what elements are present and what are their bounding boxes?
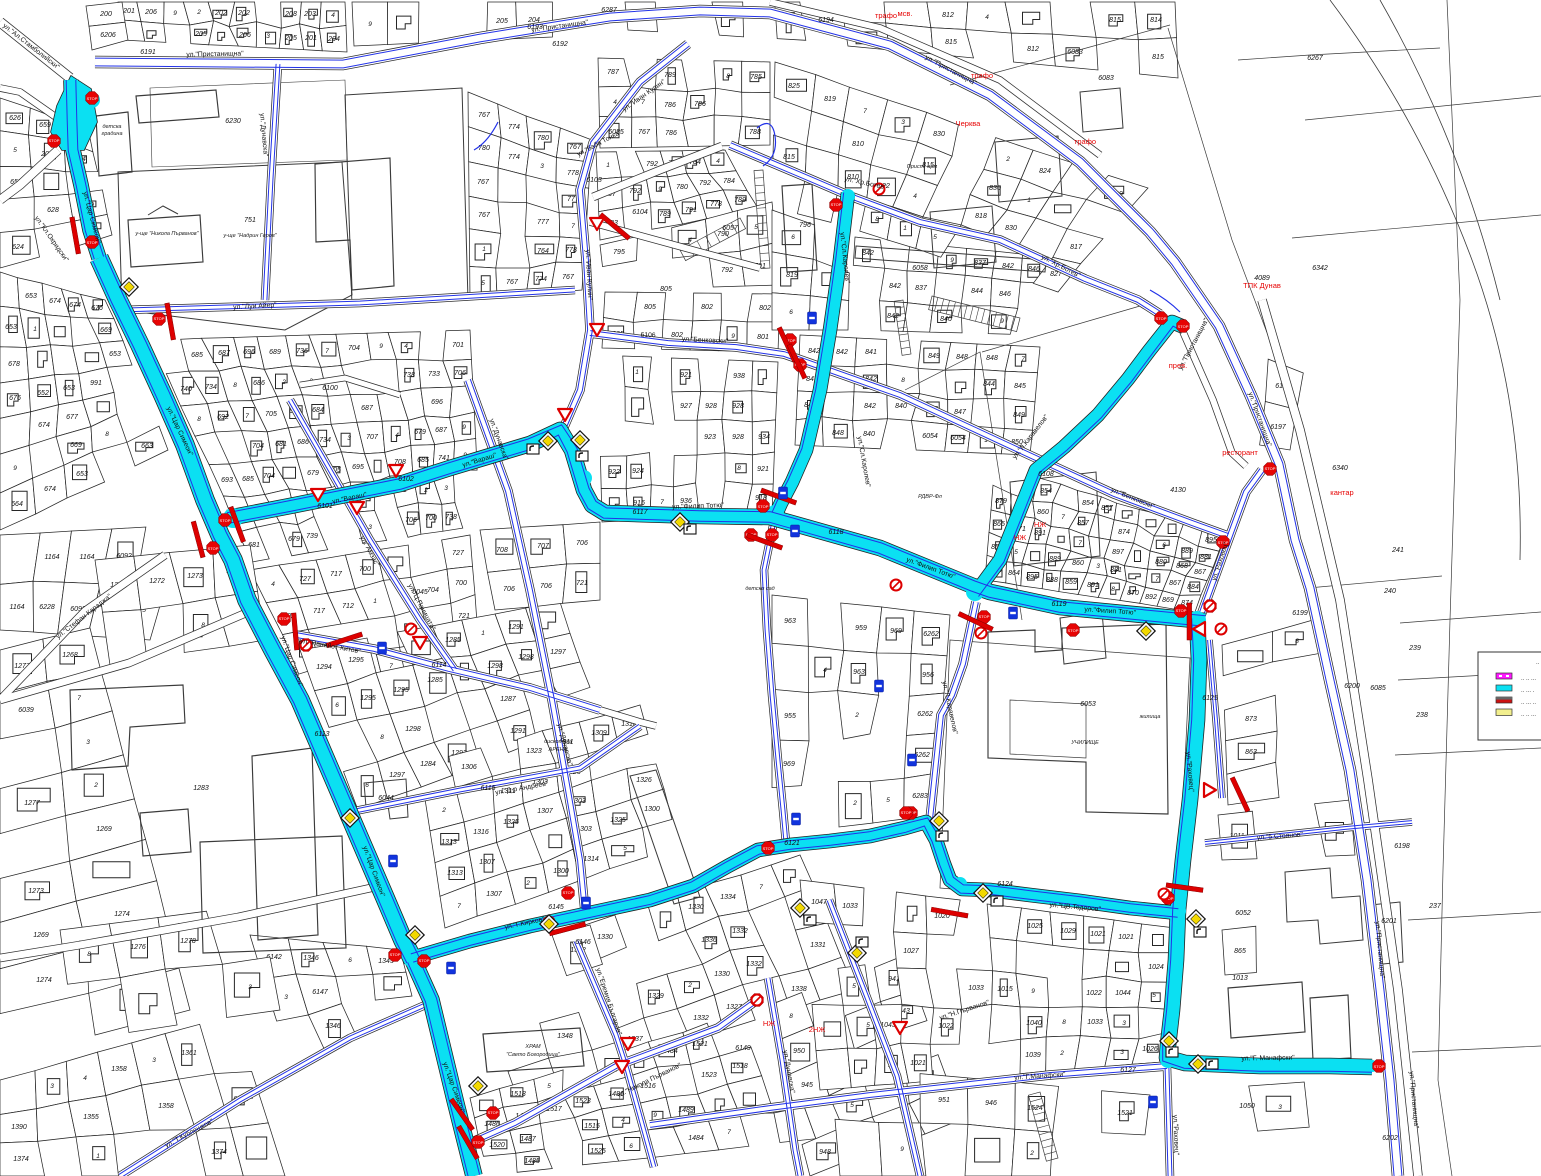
svg-text:860: 860 (1037, 509, 1049, 516)
svg-text:6124: 6124 (997, 881, 1013, 888)
svg-text:1521: 1521 (692, 1041, 708, 1048)
svg-text:3: 3 (248, 984, 252, 991)
svg-text:НЖ: НЖ (1014, 533, 1026, 542)
svg-text:817: 817 (1070, 244, 1083, 251)
svg-text:6119: 6119 (1051, 601, 1066, 608)
svg-text:1332: 1332 (746, 961, 762, 968)
svg-text:652: 652 (37, 390, 49, 397)
svg-text:767: 767 (562, 274, 575, 281)
svg-text:у-ще "Никола Първанов": у-ще "Никола Първанов" (134, 231, 199, 237)
svg-text:1525: 1525 (590, 1148, 606, 1155)
svg-text:241: 241 (1391, 547, 1404, 554)
svg-text:928: 928 (705, 403, 717, 410)
svg-text:1015: 1015 (997, 986, 1013, 993)
svg-text:1334: 1334 (720, 894, 736, 901)
svg-text:6267: 6267 (1307, 55, 1324, 62)
svg-text:792: 792 (699, 180, 711, 187)
svg-text:774: 774 (535, 276, 547, 283)
svg-text:9: 9 (731, 333, 735, 340)
svg-text:704: 704 (348, 345, 360, 352)
svg-text:1: 1 (96, 1153, 100, 1160)
svg-text:734: 734 (205, 384, 217, 391)
svg-text:1326: 1326 (636, 777, 652, 784)
svg-text:дискотека: дискотека (544, 739, 572, 745)
svg-text:6053: 6053 (1080, 701, 1096, 708)
svg-text:6125: 6125 (1202, 695, 1218, 702)
svg-text:205: 205 (495, 18, 508, 25)
svg-text:202: 202 (214, 10, 227, 17)
svg-text:812: 812 (1027, 46, 1039, 53)
svg-text:1300: 1300 (553, 868, 569, 875)
svg-text:874: 874 (1118, 529, 1130, 536)
svg-text:701: 701 (452, 342, 464, 349)
svg-text:830: 830 (1005, 225, 1017, 232)
svg-text:2: 2 (854, 712, 859, 719)
svg-text:700: 700 (425, 515, 437, 522)
svg-text:1285: 1285 (427, 677, 443, 684)
svg-text:695: 695 (352, 464, 364, 471)
svg-text:1: 1 (373, 598, 377, 605)
svg-text:6100: 6100 (322, 385, 338, 392)
svg-text:STOP: STOP (390, 952, 401, 957)
svg-text:840: 840 (895, 403, 907, 410)
svg-text:6057: 6057 (722, 225, 739, 232)
svg-text:704: 704 (252, 443, 264, 450)
svg-text:градина: градина (101, 131, 122, 137)
svg-text:1039: 1039 (1025, 1052, 1041, 1059)
svg-text:1298: 1298 (518, 654, 534, 661)
svg-text:.. ... .: .. ... . (1521, 688, 1535, 694)
svg-text:1: 1 (481, 630, 485, 637)
svg-text:1523: 1523 (575, 1098, 591, 1105)
svg-text:888: 888 (1046, 577, 1058, 584)
svg-text:934: 934 (758, 434, 770, 441)
svg-text:736: 736 (296, 348, 308, 355)
svg-text:767: 767 (478, 112, 491, 119)
svg-text:1: 1 (482, 246, 486, 253)
svg-text:849: 849 (928, 353, 940, 360)
svg-text:767: 767 (478, 212, 491, 219)
svg-text:7: 7 (727, 1129, 731, 1136)
svg-text:674: 674 (49, 298, 61, 305)
svg-text:.. ....: .. .... (1536, 660, 1541, 666)
svg-text:892: 892 (1145, 594, 1157, 601)
svg-text:854: 854 (1082, 500, 1094, 507)
svg-text:трафо: трафо (971, 71, 993, 80)
svg-text:9: 9 (368, 21, 372, 28)
svg-text:805: 805 (660, 286, 672, 293)
svg-text:НЖ: НЖ (1034, 520, 1046, 529)
svg-text:1: 1 (635, 369, 639, 376)
svg-text:923: 923 (704, 434, 716, 441)
svg-text:6202: 6202 (1382, 1135, 1398, 1142)
svg-text:840: 840 (863, 431, 875, 438)
svg-text:STOP: STOP (901, 810, 912, 815)
svg-text:1390: 1390 (11, 1124, 27, 1131)
svg-text:3: 3 (1278, 1104, 1282, 1111)
svg-text:2: 2 (525, 880, 530, 887)
svg-text:1295: 1295 (393, 687, 409, 694)
svg-text:4: 4 (395, 432, 399, 439)
svg-text:2: 2 (852, 800, 857, 807)
svg-text:1329: 1329 (648, 993, 664, 1000)
svg-text:844: 844 (971, 288, 983, 295)
svg-text:201: 201 (304, 35, 317, 42)
svg-text:819: 819 (824, 96, 836, 103)
svg-text:208: 208 (284, 11, 297, 18)
svg-text:684: 684 (312, 407, 324, 414)
svg-text:8: 8 (380, 734, 384, 741)
svg-text:6228: 6228 (39, 604, 55, 611)
svg-text:1358: 1358 (111, 1066, 127, 1073)
svg-text:784: 784 (723, 178, 735, 185)
svg-text:653: 653 (5, 324, 17, 331)
svg-text:1274: 1274 (114, 911, 130, 918)
svg-text:789: 789 (659, 211, 671, 218)
svg-text:810: 810 (852, 141, 864, 148)
svg-text:6: 6 (629, 1143, 633, 1150)
svg-text:6340: 6340 (1332, 465, 1348, 472)
svg-text:1297: 1297 (389, 772, 406, 779)
svg-text:778: 778 (710, 201, 722, 208)
svg-text:830: 830 (989, 185, 1001, 192)
svg-text:1298: 1298 (487, 663, 503, 670)
svg-text:238: 238 (1415, 712, 1428, 719)
svg-text:1306: 1306 (461, 764, 477, 771)
svg-text:8: 8 (87, 951, 91, 958)
svg-text:669: 669 (100, 327, 112, 334)
svg-text:868: 868 (1176, 563, 1188, 570)
svg-text:792: 792 (646, 161, 658, 168)
svg-text:3: 3 (540, 163, 544, 170)
svg-text:687: 687 (218, 350, 231, 357)
svg-text:1374: 1374 (13, 1156, 29, 1163)
svg-text:686: 686 (253, 380, 265, 387)
svg-text:628: 628 (47, 207, 59, 214)
svg-text:6054: 6054 (922, 433, 938, 440)
svg-text:2: 2 (423, 487, 428, 494)
svg-text:727: 727 (452, 550, 465, 557)
svg-text:830: 830 (933, 131, 945, 138)
svg-text:8: 8 (1062, 1019, 1066, 1026)
svg-text:3: 3 (347, 435, 351, 442)
svg-text:767: 767 (506, 279, 519, 286)
svg-text:842: 842 (836, 349, 848, 356)
svg-text:706: 706 (503, 586, 515, 593)
svg-text:948: 948 (819, 1149, 831, 1156)
svg-text:3: 3 (86, 739, 90, 746)
svg-text:1330: 1330 (597, 934, 613, 941)
svg-text:679: 679 (414, 429, 426, 436)
svg-text:6199: 6199 (1292, 610, 1308, 617)
svg-text:778: 778 (565, 247, 577, 254)
svg-text:867: 867 (1194, 569, 1207, 576)
svg-text:696: 696 (431, 399, 443, 406)
svg-text:1029: 1029 (1060, 928, 1076, 935)
svg-text:1346: 1346 (303, 955, 319, 962)
svg-text:787: 787 (607, 69, 620, 76)
svg-text:АРЕНА: АРЕНА (548, 747, 568, 753)
svg-text:6044: 6044 (378, 795, 394, 802)
svg-text:815: 815 (945, 39, 957, 46)
svg-text:1358: 1358 (158, 1103, 174, 1110)
svg-text:9: 9 (653, 1112, 657, 1119)
svg-text:1336: 1336 (701, 937, 717, 944)
svg-text:1316: 1316 (473, 829, 489, 836)
svg-text:6117: 6117 (632, 509, 648, 516)
svg-text:8: 8 (875, 216, 879, 223)
svg-text:946: 946 (985, 1100, 997, 1107)
svg-text:6: 6 (789, 309, 793, 316)
svg-text:7: 7 (863, 108, 867, 115)
svg-text:921: 921 (757, 466, 769, 473)
svg-text:705: 705 (265, 411, 277, 418)
svg-text:686: 686 (297, 439, 309, 446)
svg-text:669: 669 (70, 442, 82, 449)
svg-text:795: 795 (613, 249, 625, 256)
svg-text:5: 5 (547, 1083, 551, 1090)
svg-text:789: 789 (734, 197, 746, 204)
svg-text:881: 881 (1110, 567, 1122, 574)
svg-text:1274: 1274 (36, 977, 52, 984)
svg-text:969: 969 (783, 761, 795, 768)
svg-text:7: 7 (77, 695, 81, 702)
svg-text:692: 692 (217, 414, 229, 421)
svg-text:STOP: STOP (154, 316, 165, 321)
svg-text:857: 857 (1101, 505, 1114, 512)
svg-text:721: 721 (576, 580, 588, 587)
svg-text:детска: детска (103, 124, 122, 130)
svg-text:ресторант: ресторант (1222, 448, 1258, 457)
svg-text:6147: 6147 (312, 989, 329, 996)
svg-text:1013: 1013 (1232, 975, 1248, 982)
svg-text:1489: 1489 (678, 1107, 694, 1114)
svg-text:626: 626 (9, 115, 21, 122)
svg-text:трафо: трафо (1074, 137, 1096, 146)
svg-text:1: 1 (903, 225, 907, 232)
svg-text:1307: 1307 (479, 859, 496, 866)
svg-text:1487: 1487 (520, 1136, 537, 1143)
svg-text:STOP: STOP (208, 546, 219, 551)
svg-text:6193: 6193 (527, 24, 543, 31)
svg-text:5: 5 (1014, 549, 1018, 556)
svg-text:"Свето Богородица": "Свето Богородица" (506, 1052, 561, 1058)
svg-text:4130: 4130 (1170, 487, 1186, 494)
svg-text:5: 5 (13, 147, 17, 154)
svg-text:1294: 1294 (316, 664, 332, 671)
svg-text:5: 5 (481, 280, 485, 287)
svg-text:STOP: STOP (220, 518, 231, 523)
svg-text:.. .. ...: .. .. ... (1521, 676, 1536, 682)
svg-text:1297: 1297 (550, 649, 567, 656)
svg-text:879: 879 (995, 498, 1007, 505)
svg-text:1485: 1485 (524, 1158, 540, 1165)
svg-text:780: 780 (537, 135, 549, 142)
svg-text:1332: 1332 (693, 1015, 709, 1022)
svg-text:951: 951 (938, 1097, 950, 1104)
svg-text:6198: 6198 (1394, 843, 1410, 850)
svg-text:6: 6 (348, 957, 352, 964)
svg-text:4: 4 (331, 12, 335, 19)
svg-text:НЖ: НЖ (763, 1019, 775, 1028)
svg-text:786: 786 (665, 130, 677, 137)
svg-text:4: 4 (913, 193, 917, 200)
svg-text:3: 3 (266, 33, 270, 40)
svg-text:STOP: STOP (758, 504, 769, 509)
svg-text:6342: 6342 (1312, 265, 1328, 272)
svg-text:963: 963 (853, 669, 865, 676)
svg-text:764: 764 (537, 248, 549, 255)
svg-text:STOP: STOP (1156, 316, 1167, 321)
svg-text:687: 687 (435, 427, 448, 434)
svg-text:2: 2 (1005, 156, 1010, 163)
svg-text:751: 751 (244, 217, 256, 224)
svg-text:9: 9 (462, 424, 466, 431)
svg-text:9: 9 (658, 186, 662, 193)
svg-text:5: 5 (866, 1022, 870, 1029)
svg-text:STOP: STOP (1374, 1064, 1385, 1069)
svg-text:3: 3 (901, 119, 905, 126)
svg-text:969: 969 (890, 628, 902, 635)
svg-text:6145: 6145 (548, 904, 564, 911)
svg-text:1027: 1027 (903, 948, 920, 955)
svg-text:848: 848 (986, 355, 998, 362)
svg-text:1033: 1033 (842, 903, 858, 910)
svg-text:8: 8 (726, 73, 730, 80)
svg-text:6262: 6262 (917, 711, 933, 718)
svg-text:ХРАМ: ХРАМ (524, 1044, 541, 1050)
svg-text:6: 6 (791, 234, 795, 241)
svg-text:3: 3 (1122, 1020, 1126, 1027)
svg-text:734: 734 (319, 437, 331, 444)
svg-text:6192: 6192 (552, 41, 568, 48)
svg-text:202: 202 (237, 10, 250, 17)
svg-text:203: 203 (303, 11, 316, 18)
svg-text:7: 7 (660, 499, 664, 506)
svg-text:1273: 1273 (187, 573, 203, 580)
svg-text:205: 205 (284, 35, 297, 42)
svg-text:1285: 1285 (445, 637, 461, 644)
svg-text:6: 6 (1162, 542, 1166, 549)
svg-text:687: 687 (361, 405, 374, 412)
svg-text:1295: 1295 (348, 657, 364, 664)
svg-text:УЧИЛИЩЕ: УЧИЛИЩЕ (1070, 740, 1099, 746)
svg-text:6262: 6262 (923, 631, 939, 638)
svg-text:859: 859 (1065, 579, 1077, 586)
svg-text:8: 8 (197, 416, 201, 423)
svg-text:у-ще "Надрин Геров": у-ще "Надрин Геров" (222, 233, 277, 239)
svg-text:679: 679 (288, 536, 300, 543)
svg-text:1269: 1269 (33, 932, 49, 939)
svg-text:6149: 6149 (735, 1045, 751, 1052)
svg-text:3: 3 (284, 994, 288, 1001)
svg-text:1024: 1024 (1148, 964, 1164, 971)
svg-text:792: 792 (629, 188, 641, 195)
svg-text:7: 7 (1021, 356, 1025, 363)
svg-text:9: 9 (950, 257, 954, 264)
svg-text:1313: 1313 (447, 870, 463, 877)
svg-text:1278: 1278 (180, 938, 196, 945)
svg-text:796: 796 (799, 222, 811, 229)
svg-text:STOP: STOP (1176, 608, 1187, 613)
svg-text:717: 717 (313, 608, 326, 615)
svg-text:6114: 6114 (431, 662, 446, 669)
svg-text:739: 739 (306, 533, 318, 540)
svg-text:6085: 6085 (1370, 685, 1386, 692)
svg-text:873: 873 (1245, 716, 1257, 723)
svg-text:2: 2 (441, 807, 446, 814)
svg-text:6103: 6103 (586, 177, 602, 184)
svg-text:1033: 1033 (968, 985, 984, 992)
svg-text:5: 5 (886, 797, 890, 804)
svg-text:802: 802 (701, 304, 713, 311)
svg-text:1298: 1298 (405, 726, 421, 733)
svg-text:1044: 1044 (1115, 990, 1131, 997)
svg-text:1518: 1518 (510, 1091, 526, 1098)
svg-text:733: 733 (428, 371, 440, 378)
svg-text:679: 679 (307, 470, 319, 477)
svg-text:815: 815 (1109, 17, 1121, 24)
svg-text:2: 2 (93, 782, 98, 789)
svg-text:842: 842 (889, 283, 901, 290)
svg-text:Черква: Черква (956, 119, 982, 128)
svg-text:ул."Раховец": ул."Раховец" (1171, 1115, 1179, 1156)
svg-text:8: 8 (901, 377, 905, 384)
svg-text:2НЖ: 2НЖ (809, 1025, 826, 1034)
svg-text:1164: 1164 (44, 554, 59, 561)
svg-text:2: 2 (281, 379, 286, 386)
svg-text:819: 819 (786, 272, 798, 279)
svg-text:841: 841 (865, 349, 877, 356)
svg-text:624: 624 (12, 244, 24, 251)
svg-text:трафо: трафо (875, 11, 897, 20)
svg-text:6: 6 (335, 702, 339, 709)
svg-text:707: 707 (366, 434, 379, 441)
svg-text:1164: 1164 (79, 554, 94, 561)
svg-text:693: 693 (221, 477, 233, 484)
svg-text:5: 5 (852, 983, 856, 990)
svg-text:9: 9 (173, 10, 177, 17)
svg-text:STOP: STOP (419, 958, 430, 963)
svg-text:1291: 1291 (508, 624, 524, 631)
svg-text:950: 950 (793, 1048, 805, 1055)
svg-text:8: 8 (1295, 638, 1299, 645)
svg-text:1268: 1268 (62, 652, 78, 659)
svg-text:891: 891 (1087, 582, 1099, 589)
svg-text:788: 788 (749, 129, 761, 136)
svg-text:1338: 1338 (791, 986, 807, 993)
svg-text:1520: 1520 (489, 1142, 505, 1149)
svg-text:704: 704 (263, 473, 275, 480)
svg-text:1050: 1050 (1239, 1103, 1255, 1110)
svg-text:938: 938 (733, 373, 745, 380)
svg-text:9: 9 (1031, 988, 1035, 995)
svg-text:1022: 1022 (1086, 990, 1102, 997)
svg-text:1276: 1276 (130, 944, 146, 951)
svg-text:653: 653 (25, 293, 37, 300)
svg-text:6083: 6083 (1098, 75, 1114, 82)
svg-text:STOP: STOP (1068, 628, 1079, 633)
svg-text:815: 815 (1152, 54, 1164, 61)
svg-text:786: 786 (664, 102, 676, 109)
svg-text:812: 812 (942, 12, 954, 19)
svg-text:1295: 1295 (360, 695, 376, 702)
svg-text:2: 2 (196, 9, 201, 16)
svg-text:738: 738 (403, 372, 415, 379)
svg-text:1307: 1307 (537, 808, 554, 815)
svg-text:653: 653 (63, 385, 75, 392)
svg-text:4: 4 (271, 581, 275, 588)
